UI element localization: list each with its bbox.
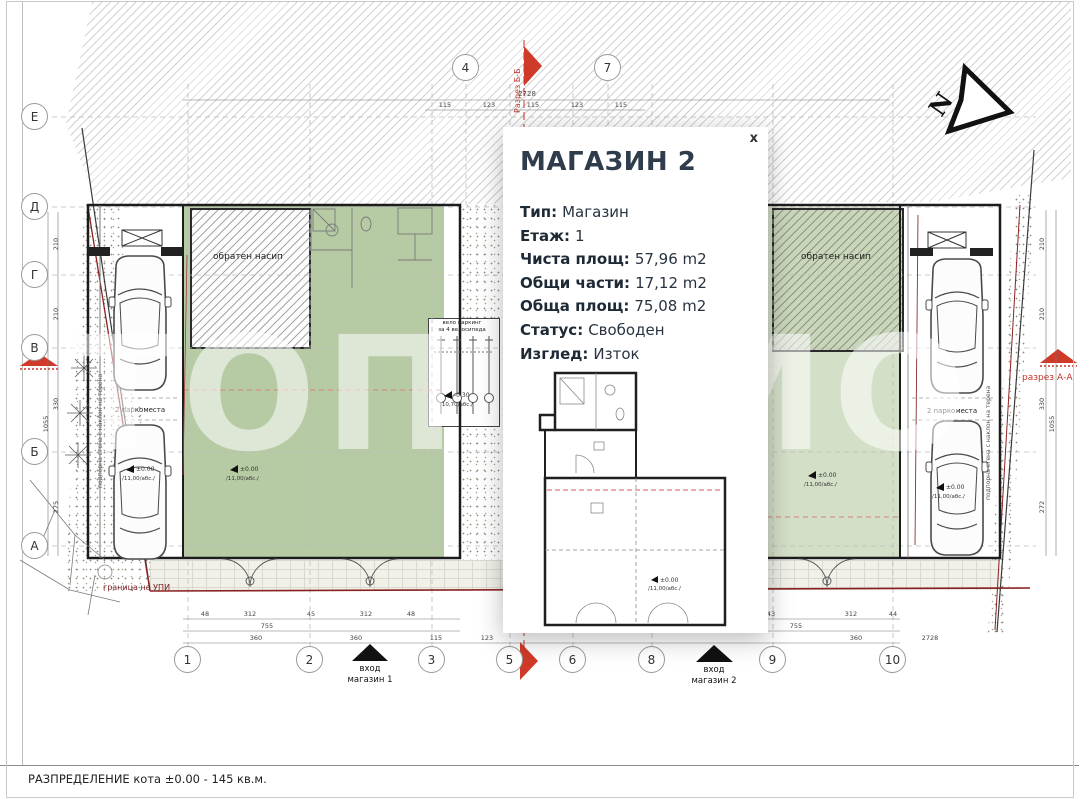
field-status: Статус:Свободен bbox=[520, 319, 758, 343]
field-type: Тип:Магазин bbox=[520, 201, 758, 225]
grid-row-A: А bbox=[21, 532, 48, 559]
field-label: Общи части: bbox=[520, 274, 630, 292]
entrance-markers: вход магазин 1 вход магазин 2 bbox=[347, 644, 736, 686]
svg-text:44: 44 bbox=[889, 610, 897, 618]
svg-text:210: 210 bbox=[52, 238, 60, 250]
section-flag-top bbox=[524, 46, 542, 86]
field-net-area: Чиста площ:57,96 m2 bbox=[520, 248, 758, 272]
section-flag-right bbox=[1040, 349, 1077, 363]
svg-text:210: 210 bbox=[1038, 238, 1046, 250]
grid-col-label: 10 bbox=[885, 653, 900, 667]
svg-text:115: 115 bbox=[615, 101, 627, 109]
retaining-wall-label-right: подпорна стена с наклон на терена bbox=[985, 385, 992, 500]
field-value: Магазин bbox=[562, 203, 629, 221]
grid-col-10: 10 bbox=[879, 646, 906, 673]
svg-text:±0.00: ±0.00 bbox=[240, 466, 259, 473]
svg-text:43: 43 bbox=[767, 610, 775, 618]
svg-text:/10,70/абс./: /10,70/абс./ bbox=[440, 402, 473, 408]
svg-text:±0.00: ±0.00 bbox=[136, 466, 155, 473]
svg-text:360: 360 bbox=[350, 634, 362, 642]
svg-text:312: 312 bbox=[845, 610, 857, 618]
bike-parking-label: вело паркинг за 4 велосипеда bbox=[430, 320, 494, 334]
grid-col-label: 9 bbox=[769, 653, 777, 667]
svg-text:/11,00/абс./: /11,00/абс./ bbox=[226, 476, 259, 482]
grid-col-label: 3 bbox=[428, 653, 436, 667]
svg-text:вход: вход bbox=[359, 664, 380, 674]
grid-col-7: 7 bbox=[594, 54, 621, 81]
grid-col-label: 7 bbox=[604, 61, 612, 75]
grid-row-label: А bbox=[30, 539, 38, 553]
svg-text:210: 210 bbox=[1038, 308, 1046, 320]
shop1-interior-fixtures bbox=[311, 208, 432, 288]
popup-title: МАГАЗИН 2 bbox=[520, 147, 696, 177]
grid-row-label: Е bbox=[31, 110, 39, 124]
svg-text:312: 312 bbox=[244, 610, 256, 618]
grid-col-4: 4 bbox=[452, 54, 479, 81]
svg-text:/11,00/абс./: /11,00/абс./ bbox=[648, 586, 681, 592]
grid-row-D: Д bbox=[21, 193, 48, 220]
field-floor: Етаж:1 bbox=[520, 225, 758, 249]
parking-label-left: 2 паркоместа bbox=[106, 406, 174, 414]
floorplan-sheet: N Разрез Б-Б разрез А-А 2728 1 bbox=[0, 0, 1079, 804]
grid-col-label: 8 bbox=[648, 653, 656, 667]
grid-col-3: 3 bbox=[418, 646, 445, 673]
grid-row-label: Д bbox=[30, 200, 39, 214]
footer-divider bbox=[0, 765, 1079, 766]
field-label: Статус: bbox=[520, 321, 583, 339]
svg-text:2728: 2728 bbox=[518, 90, 536, 98]
svg-text:123: 123 bbox=[483, 101, 495, 109]
field-value: Свободен bbox=[588, 321, 664, 339]
footer-caption: РАЗПРЕДЕЛЕНИЕ кота ±0.00 - 145 кв.м. bbox=[28, 772, 267, 786]
car-top-view bbox=[926, 259, 988, 393]
section-aa-label: разрез А-А bbox=[1022, 373, 1073, 383]
svg-text:/11,00/абс./: /11,00/абс./ bbox=[122, 476, 155, 482]
field-common-parts: Общи части:17,12 m2 bbox=[520, 272, 758, 296]
field-label: Изглед: bbox=[520, 345, 588, 363]
field-label: Чиста площ: bbox=[520, 250, 630, 268]
grid-col-9: 9 bbox=[759, 646, 786, 673]
bike-parking-label-line1: вело паркинг bbox=[430, 320, 494, 327]
grid-col-5: 5 bbox=[496, 646, 523, 673]
field-value: 57,96 m2 bbox=[635, 250, 707, 268]
field-label: Тип: bbox=[520, 203, 557, 221]
grid-row-label: В bbox=[30, 341, 38, 355]
grid-row-label: Б bbox=[30, 445, 38, 459]
close-icon[interactable]: x bbox=[750, 132, 758, 146]
svg-text:755: 755 bbox=[261, 622, 273, 630]
backfill-label-right: обратен насип bbox=[786, 252, 886, 262]
svg-text:210: 210 bbox=[52, 308, 60, 320]
svg-text:312: 312 bbox=[360, 610, 372, 618]
svg-text:115: 115 bbox=[430, 634, 442, 642]
svg-text:755: 755 bbox=[790, 622, 802, 630]
upi-boundary-label: граница на УПИ bbox=[103, 583, 170, 592]
svg-text:-0.30: -0.30 bbox=[454, 392, 470, 399]
grid-col-label: 2 bbox=[306, 653, 314, 667]
field-view: Изглед:Изток bbox=[520, 343, 758, 367]
popup-fields: Тип:Магазин Етаж:1 Чиста площ:57,96 m2 О… bbox=[520, 201, 758, 366]
svg-text:123: 123 bbox=[571, 101, 583, 109]
svg-text:магазин 1: магазин 1 bbox=[347, 675, 392, 685]
svg-text:360: 360 bbox=[250, 634, 262, 642]
shop-info-popup: x МАГАЗИН 2 Тип:Магазин Етаж:1 Чиста пло… bbox=[503, 127, 768, 633]
grid-col-6: 6 bbox=[559, 646, 586, 673]
bike-parking-label-line2: за 4 велосипеда bbox=[430, 327, 494, 334]
grid-row-V: В bbox=[21, 334, 48, 361]
field-value: Изток bbox=[593, 345, 639, 363]
grid-row-G: Г bbox=[21, 261, 48, 288]
svg-text:123: 123 bbox=[481, 634, 493, 642]
svg-text:330: 330 bbox=[52, 398, 60, 410]
svg-text:360: 360 bbox=[850, 634, 862, 642]
field-value: 17,12 m2 bbox=[635, 274, 707, 292]
field-label: Етаж: bbox=[520, 227, 570, 245]
svg-text:магазин 2: магазин 2 bbox=[691, 676, 736, 686]
field-value: 75,08 m2 bbox=[634, 297, 706, 315]
grid-col-label: 4 bbox=[462, 61, 470, 75]
thumbnail-elevation: ±0.00 /11,00/абс./ bbox=[648, 576, 681, 592]
svg-text:115: 115 bbox=[527, 101, 539, 109]
entrance2-triangle bbox=[696, 645, 733, 662]
svg-text:±0.00: ±0.00 bbox=[660, 577, 679, 584]
entrance1-triangle bbox=[352, 644, 388, 661]
grid-col-1: 1 bbox=[174, 646, 201, 673]
svg-text:вход: вход bbox=[703, 665, 724, 675]
svg-text:330: 330 bbox=[1038, 398, 1046, 410]
svg-text:48: 48 bbox=[201, 610, 209, 618]
grid-col-label: 5 bbox=[506, 653, 514, 667]
svg-text:275: 275 bbox=[52, 501, 60, 513]
grid-col-8: 8 bbox=[638, 646, 665, 673]
svg-text:272: 272 bbox=[1038, 501, 1046, 513]
grid-col-label: 1 bbox=[184, 653, 192, 667]
car-top-view bbox=[109, 256, 171, 390]
svg-text:/11,00/абс./: /11,00/абс./ bbox=[932, 494, 965, 500]
field-value: 1 bbox=[575, 227, 585, 245]
parking-label-right: 2 паркоместа bbox=[918, 407, 986, 415]
field-label: Обща площ: bbox=[520, 297, 629, 315]
shop2-plan-thumbnail: ±0.00 /11,00/абс./ bbox=[536, 370, 734, 628]
retaining-wall-label-left: подпорна стена с наклон на терена bbox=[97, 373, 104, 488]
grid-row-label: Г bbox=[31, 268, 38, 282]
grid-col-label: 6 bbox=[569, 653, 577, 667]
grid-col-2: 2 bbox=[296, 646, 323, 673]
svg-text:±0.00: ±0.00 bbox=[818, 472, 837, 479]
svg-text:/11,00/абс./: /11,00/абс./ bbox=[804, 482, 837, 488]
svg-text:45: 45 bbox=[307, 610, 315, 618]
car-top-view bbox=[109, 425, 171, 559]
grid-row-E: Е bbox=[21, 103, 48, 130]
svg-text:2728: 2728 bbox=[922, 634, 939, 642]
svg-text:115: 115 bbox=[439, 101, 451, 109]
trees bbox=[20, 355, 120, 615]
north-arrow-icon: N bbox=[923, 68, 1010, 131]
svg-text:±0.00: ±0.00 bbox=[946, 484, 965, 491]
backfill-label-left: обратен насип bbox=[198, 252, 298, 262]
svg-text:1055: 1055 bbox=[42, 416, 50, 433]
grid-row-B: Б bbox=[21, 438, 48, 465]
field-total-area: Обща площ:75,08 m2 bbox=[520, 295, 758, 319]
svg-text:1055: 1055 bbox=[1048, 416, 1056, 433]
svg-text:48: 48 bbox=[407, 610, 415, 618]
